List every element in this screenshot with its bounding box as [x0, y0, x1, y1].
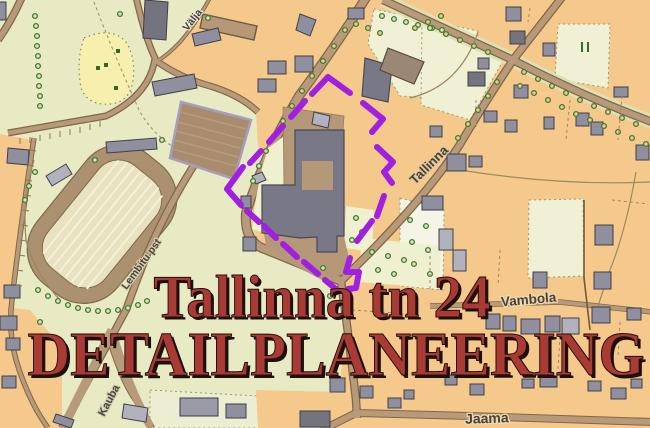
- svg-text:DETAILPLANEERING: DETAILPLANEERING: [28, 321, 645, 389]
- svg-text:Jaama: Jaama: [465, 409, 509, 427]
